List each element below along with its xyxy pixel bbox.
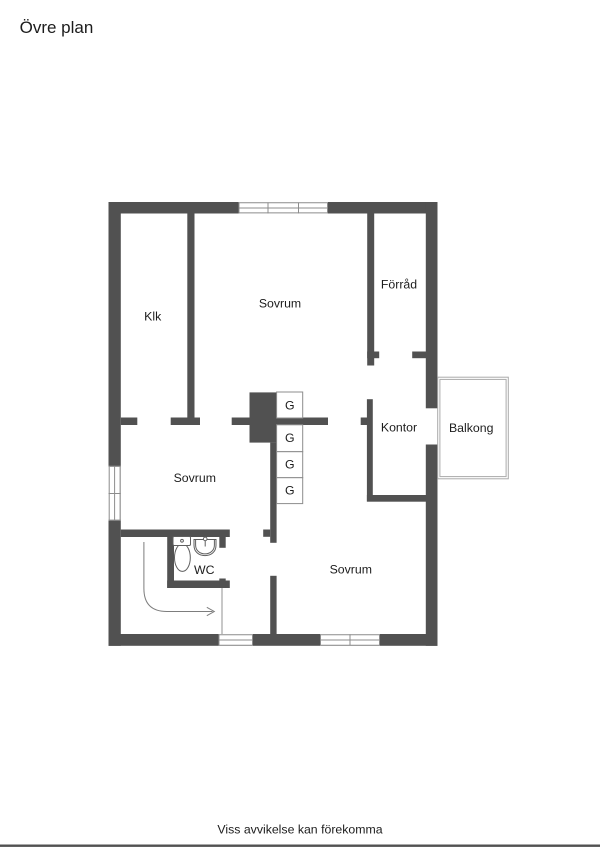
- svg-text:Sovrum: Sovrum: [330, 562, 372, 576]
- svg-text:Viss avvikelse kan förekomma: Viss avvikelse kan förekomma: [217, 823, 382, 837]
- svg-text:Övre plan: Övre plan: [20, 18, 94, 37]
- svg-text:G: G: [285, 458, 295, 472]
- svg-text:G: G: [285, 399, 295, 413]
- svg-text:Sovrum: Sovrum: [174, 471, 216, 485]
- svg-text:Klk: Klk: [144, 310, 162, 324]
- svg-text:Kontor: Kontor: [381, 420, 417, 434]
- svg-text:Sovrum: Sovrum: [259, 297, 301, 311]
- svg-text:Förråd: Förråd: [381, 278, 417, 292]
- svg-text:WC: WC: [194, 563, 215, 577]
- svg-text:Balkong: Balkong: [449, 421, 494, 435]
- svg-text:G: G: [285, 484, 295, 498]
- svg-text:G: G: [285, 431, 295, 445]
